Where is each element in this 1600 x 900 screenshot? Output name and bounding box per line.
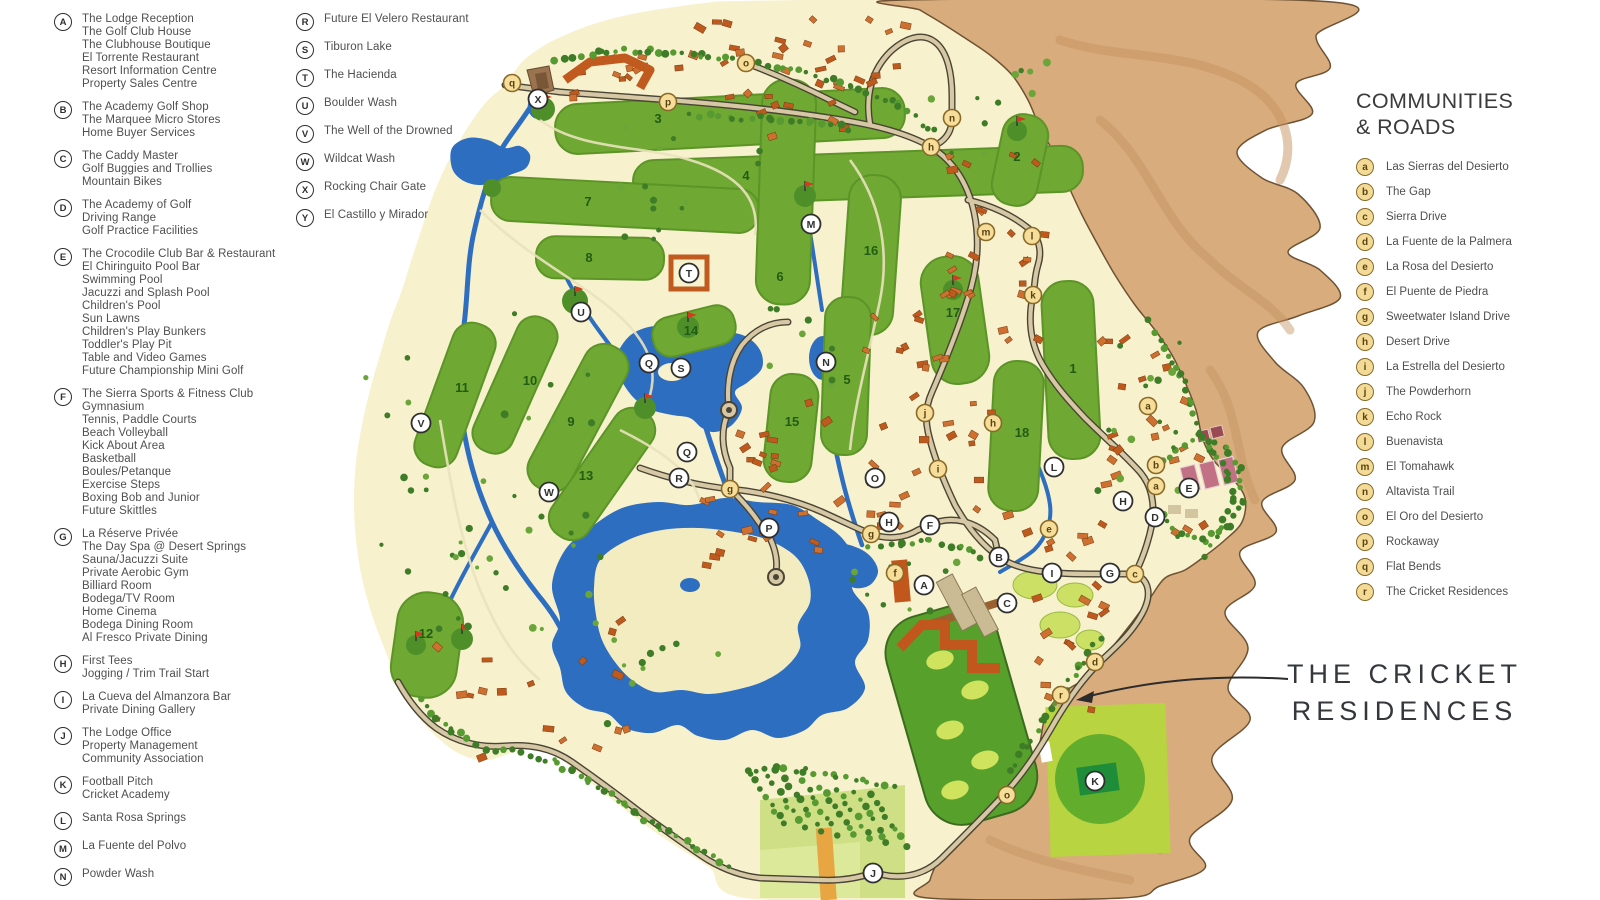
- facility-marker-P: P: [760, 519, 779, 538]
- hole-number-12: 12: [419, 626, 433, 641]
- facility-marker-G: G: [1101, 564, 1120, 583]
- svg-text:K: K: [1091, 776, 1099, 788]
- community-item-c: cSierra Drive: [1356, 208, 1594, 226]
- community-label-a: Las Sierras del Desierto: [1386, 161, 1509, 173]
- svg-text:C: C: [1003, 598, 1011, 610]
- road-marker-o: o: [738, 55, 755, 72]
- legend-item-C: CThe Caddy MasterGolf Buggies and Trolli…: [54, 150, 299, 189]
- communities-roads-legend: COMMUNITIES & ROADS aLas Sierras del Des…: [1356, 88, 1594, 608]
- legend-item-Y: YEl Castillo y Mirador: [296, 209, 481, 227]
- legend-text-I: La Cueva del Almanzora BarPrivate Dining…: [82, 691, 231, 717]
- svg-text:e: e: [1046, 525, 1052, 536]
- facility-marker-W: W: [540, 483, 559, 502]
- community-label-h: Desert Drive: [1386, 336, 1450, 348]
- legend-badge-F: F: [54, 388, 72, 406]
- legend-text-B: The Academy Golf ShopThe Marquee Micro S…: [82, 101, 221, 140]
- community-badge-l: l: [1356, 433, 1374, 451]
- legend-item-G: GLa Réserve PrivéeThe Day Spa @ Desert S…: [54, 528, 299, 645]
- svg-text:E: E: [1185, 483, 1192, 495]
- facility-marker-H: H: [1114, 492, 1133, 511]
- facility-marker-D: D: [1146, 508, 1165, 527]
- community-label-j: The Powderhorn: [1386, 386, 1471, 398]
- road-marker-g: g: [863, 526, 880, 543]
- legend-badge-S: S: [296, 41, 314, 59]
- legend-item-K: KFootball PitchCricket Academy: [54, 776, 299, 802]
- legend-item-R: RFuture El Velero Restaurant: [296, 13, 481, 31]
- facility-marker-R: R: [670, 469, 689, 488]
- legend-item-T: TThe Hacienda: [296, 69, 481, 87]
- community-item-g: gSweetwater Island Drive: [1356, 308, 1594, 326]
- road-marker-p: p: [660, 94, 677, 111]
- road-marker-a: a: [1148, 478, 1165, 495]
- resort-map-page: 123456789101112131415161718qponhmlkjhiab…: [0, 0, 1600, 900]
- communities-list: aLas Sierras del DesiertobThe GapcSierra…: [1356, 158, 1594, 601]
- road-marker-q: q: [504, 75, 521, 92]
- hole-number-2: 2: [1013, 149, 1020, 164]
- legend-text-A: The Lodge ReceptionThe Golf Club HouseTh…: [82, 13, 217, 91]
- svg-text:r: r: [1059, 691, 1063, 702]
- legend-text-C: The Caddy MasterGolf Buggies and Trollie…: [82, 150, 212, 189]
- svg-text:h: h: [928, 143, 934, 154]
- legend-item-H: HFirst TeesJogging / Trim Trail Start: [54, 655, 299, 681]
- community-item-l: lBuenavista: [1356, 433, 1594, 451]
- facility-marker-M: M: [802, 215, 821, 234]
- legend-item-S: STiburon Lake: [296, 41, 481, 59]
- legend-item-B: BThe Academy Golf ShopThe Marquee Micro …: [54, 101, 299, 140]
- community-item-q: qFlat Bends: [1356, 558, 1594, 576]
- svg-text:c: c: [1132, 570, 1138, 581]
- road-marker-i: i: [930, 461, 947, 478]
- svg-text:i: i: [937, 465, 940, 476]
- svg-text:b: b: [1153, 461, 1159, 472]
- facility-marker-E: E: [1180, 479, 1199, 498]
- communities-title-line2: & ROADS: [1356, 114, 1594, 140]
- svg-text:j: j: [923, 409, 927, 420]
- legend-text-K: Football PitchCricket Academy: [82, 776, 170, 802]
- road-marker-g: g: [722, 481, 739, 498]
- facilities-legend: AThe Lodge ReceptionThe Golf Club HouseT…: [54, 13, 299, 896]
- legend-text-X: Rocking Chair Gate: [324, 181, 426, 199]
- community-badge-h: h: [1356, 333, 1374, 351]
- hole-number-6: 6: [776, 269, 783, 284]
- svg-text:a: a: [1153, 482, 1159, 493]
- legend-text-H: First TeesJogging / Trim Trail Start: [82, 655, 209, 681]
- community-label-d: La Fuente de la Palmera: [1386, 236, 1512, 248]
- road-marker-e: e: [1041, 521, 1058, 538]
- legend-badge-W: W: [296, 153, 314, 171]
- hole-number-1: 1: [1069, 361, 1076, 376]
- hole-number-14: 14: [684, 323, 699, 338]
- legend-badge-G: G: [54, 528, 72, 546]
- community-badge-q: q: [1356, 558, 1374, 576]
- road-marker-c: c: [1127, 566, 1144, 583]
- svg-text:a: a: [1145, 402, 1151, 413]
- svg-text:d: d: [1092, 658, 1098, 669]
- communities-title-line1: COMMUNITIES: [1356, 88, 1594, 114]
- legend-badge-A: A: [54, 13, 72, 31]
- legend-badge-M: M: [54, 840, 72, 858]
- road-marker-b: b: [1148, 457, 1165, 474]
- road-marker-j: j: [917, 405, 934, 422]
- svg-text:k: k: [1030, 291, 1036, 302]
- hole-number-8: 8: [585, 250, 592, 265]
- hole-number-10: 10: [523, 373, 537, 388]
- legend-text-T: The Hacienda: [324, 69, 397, 87]
- community-label-q: Flat Bends: [1386, 561, 1441, 573]
- legend-badge-H: H: [54, 655, 72, 673]
- svg-text:H: H: [885, 517, 893, 529]
- hole-number-15: 15: [785, 414, 799, 429]
- community-label-m: El Tomahawk: [1386, 461, 1454, 473]
- community-badge-r: r: [1356, 583, 1374, 601]
- road-marker-l: l: [1024, 228, 1041, 245]
- hole-number-7: 7: [584, 194, 591, 209]
- facility-marker-L: L: [1045, 458, 1064, 477]
- legend-item-M: MLa Fuente del Polvo: [54, 840, 299, 858]
- svg-text:Q: Q: [683, 447, 691, 459]
- svg-text:l: l: [1031, 232, 1034, 243]
- community-badge-n: n: [1356, 483, 1374, 501]
- legend-text-V: The Well of the Drowned: [324, 125, 453, 143]
- community-item-f: fEl Puente de Piedra: [1356, 283, 1594, 301]
- facility-marker-C: C: [998, 594, 1017, 613]
- road-marker-k: k: [1025, 287, 1042, 304]
- svg-text:I: I: [1051, 568, 1054, 580]
- legend-text-L: Santa Rosa Springs: [82, 812, 186, 830]
- legend-item-W: WWildcat Wash: [296, 153, 481, 171]
- svg-text:o: o: [743, 59, 749, 70]
- hole-number-11: 11: [455, 380, 469, 395]
- legend-text-R: Future El Velero Restaurant: [324, 13, 469, 31]
- community-item-e: eLa Rosa del Desierto: [1356, 258, 1594, 276]
- road-marker-r: r: [1053, 687, 1070, 704]
- hole-number-16: 16: [864, 243, 878, 258]
- community-item-b: bThe Gap: [1356, 183, 1594, 201]
- hole-number-13: 13: [579, 468, 593, 483]
- legend-badge-Y: Y: [296, 209, 314, 227]
- svg-text:X: X: [534, 94, 541, 106]
- facility-marker-U: U: [572, 303, 591, 322]
- svg-text:W: W: [544, 487, 554, 499]
- facility-marker-Q: Q: [678, 443, 697, 462]
- legend-text-U: Boulder Wash: [324, 97, 397, 115]
- communities-title: COMMUNITIES & ROADS: [1356, 88, 1594, 140]
- community-item-r: rThe Cricket Residences: [1356, 583, 1594, 601]
- svg-text:U: U: [577, 307, 585, 319]
- community-label-e: La Rosa del Desierto: [1386, 261, 1493, 273]
- hole-number-9: 9: [567, 414, 574, 429]
- legend-badge-E: E: [54, 248, 72, 266]
- road-marker-d: d: [1087, 654, 1104, 671]
- facility-marker-A: A: [915, 576, 934, 595]
- legend-text-N: Powder Wash: [82, 868, 154, 886]
- svg-text:F: F: [927, 520, 934, 532]
- hole-number-4: 4: [742, 168, 750, 183]
- legend-text-F: The Sierra Sports & Fitness ClubGymnasiu…: [82, 388, 253, 518]
- community-label-c: Sierra Drive: [1386, 211, 1447, 223]
- hole-number-3: 3: [654, 111, 661, 126]
- community-item-a: aLas Sierras del Desierto: [1356, 158, 1594, 176]
- facility-marker-V: V: [412, 414, 431, 433]
- legend-text-E: The Crocodile Club Bar & RestaurantEl Ch…: [82, 248, 275, 378]
- community-badge-c: c: [1356, 208, 1374, 226]
- legend-item-E: EThe Crocodile Club Bar & RestaurantEl C…: [54, 248, 299, 378]
- legend-badge-J: J: [54, 727, 72, 745]
- legend-badge-D: D: [54, 199, 72, 217]
- legend-badge-B: B: [54, 101, 72, 119]
- community-label-g: Sweetwater Island Drive: [1386, 311, 1510, 323]
- legend-text-W: Wildcat Wash: [324, 153, 395, 171]
- svg-text:o: o: [1004, 791, 1010, 802]
- community-badge-b: b: [1356, 183, 1374, 201]
- facility-marker-N: N: [817, 353, 836, 372]
- legend-item-L: LSanta Rosa Springs: [54, 812, 299, 830]
- community-badge-o: o: [1356, 508, 1374, 526]
- community-item-i: iLa Estrella del Desierto: [1356, 358, 1594, 376]
- legend-badge-X: X: [296, 181, 314, 199]
- community-badge-d: d: [1356, 233, 1374, 251]
- legend-badge-L: L: [54, 812, 72, 830]
- legend-text-D: The Academy of GolfDriving RangeGolf Pra…: [82, 199, 198, 238]
- svg-text:q: q: [509, 79, 515, 90]
- svg-text:R: R: [675, 473, 683, 485]
- legend-badge-U: U: [296, 97, 314, 115]
- community-label-o: El Oro del Desierto: [1386, 511, 1483, 523]
- road-marker-n: n: [944, 110, 961, 127]
- community-item-p: pRockaway: [1356, 533, 1594, 551]
- facility-marker-O: O: [866, 469, 885, 488]
- community-item-h: hDesert Drive: [1356, 333, 1594, 351]
- community-badge-i: i: [1356, 358, 1374, 376]
- community-item-k: kEcho Rock: [1356, 408, 1594, 426]
- svg-text:L: L: [1051, 462, 1058, 474]
- svg-text:Q: Q: [645, 358, 653, 370]
- legend-badge-C: C: [54, 150, 72, 168]
- legend-badge-R: R: [296, 13, 314, 31]
- facility-marker-T: T: [680, 264, 699, 283]
- legend-badge-K: K: [54, 776, 72, 794]
- legend-item-U: UBoulder Wash: [296, 97, 481, 115]
- community-badge-e: e: [1356, 258, 1374, 276]
- svg-text:H: H: [1119, 496, 1127, 508]
- svg-text:N: N: [822, 357, 830, 369]
- community-label-l: Buenavista: [1386, 436, 1443, 448]
- facility-marker-J: J: [864, 864, 883, 883]
- legend-item-I: ILa Cueva del Almanzora BarPrivate Dinin…: [54, 691, 299, 717]
- svg-text:J: J: [870, 868, 876, 880]
- legend-text-M: La Fuente del Polvo: [82, 840, 186, 858]
- svg-text:p: p: [665, 98, 671, 109]
- community-item-d: dLa Fuente de la Palmera: [1356, 233, 1594, 251]
- community-label-f: El Puente de Piedra: [1386, 286, 1488, 298]
- legend-badge-I: I: [54, 691, 72, 709]
- svg-text:B: B: [995, 552, 1003, 564]
- community-item-o: oEl Oro del Desierto: [1356, 508, 1594, 526]
- facility-marker-X: X: [529, 90, 548, 109]
- community-label-b: The Gap: [1386, 186, 1431, 198]
- facility-marker-H: H: [880, 513, 899, 532]
- community-badge-p: p: [1356, 533, 1374, 551]
- svg-text:D: D: [1151, 512, 1159, 524]
- road-marker-h: h: [985, 415, 1002, 432]
- community-badge-k: k: [1356, 408, 1374, 426]
- road-marker-o: o: [999, 787, 1016, 804]
- landmarks-legend: RFuture El Velero RestaurantSTiburon Lak…: [296, 13, 481, 237]
- legend-item-A: AThe Lodge ReceptionThe Golf Club HouseT…: [54, 13, 299, 91]
- callout-line1: THE CRICKET: [1282, 656, 1527, 693]
- community-badge-f: f: [1356, 283, 1374, 301]
- facility-marker-I: I: [1043, 564, 1062, 583]
- legend-text-G: La Réserve PrivéeThe Day Spa @ Desert Sp…: [82, 528, 246, 645]
- community-badge-j: j: [1356, 383, 1374, 401]
- svg-text:g: g: [868, 530, 874, 541]
- community-badge-g: g: [1356, 308, 1374, 326]
- road-marker-m: m: [978, 224, 995, 241]
- community-badge-a: a: [1356, 158, 1374, 176]
- community-badge-m: m: [1356, 458, 1374, 476]
- legend-text-S: Tiburon Lake: [324, 41, 392, 59]
- svg-text:T: T: [686, 268, 693, 280]
- facility-marker-S: S: [672, 359, 691, 378]
- legend-text-Y: El Castillo y Mirador: [324, 209, 428, 227]
- svg-text:n: n: [949, 114, 955, 125]
- facility-marker-K: K: [1086, 772, 1105, 791]
- callout-line2: RESIDENCES: [1282, 693, 1527, 730]
- svg-text:M: M: [807, 219, 816, 231]
- facility-marker-Q: Q: [640, 354, 659, 373]
- hole-number-5: 5: [843, 372, 850, 387]
- legend-text-J: The Lodge OfficeProperty ManagementCommu…: [82, 727, 204, 766]
- svg-text:A: A: [920, 580, 928, 592]
- legend-item-F: FThe Sierra Sports & Fitness ClubGymnasi…: [54, 388, 299, 518]
- hole-number-18: 18: [1015, 425, 1029, 440]
- svg-text:g: g: [727, 485, 733, 496]
- community-item-n: nAltavista Trail: [1356, 483, 1594, 501]
- road-marker-a: a: [1140, 398, 1157, 415]
- svg-text:V: V: [417, 418, 424, 430]
- svg-text:P: P: [765, 523, 772, 535]
- legend-item-N: NPowder Wash: [54, 868, 299, 886]
- svg-text:m: m: [982, 228, 991, 239]
- community-label-i: La Estrella del Desierto: [1386, 361, 1505, 373]
- facility-marker-F: F: [921, 516, 940, 535]
- legend-item-X: XRocking Chair Gate: [296, 181, 481, 199]
- community-item-m: mEl Tomahawk: [1356, 458, 1594, 476]
- community-label-p: Rockaway: [1386, 536, 1439, 548]
- legend-item-V: VThe Well of the Drowned: [296, 125, 481, 143]
- legend-badge-T: T: [296, 69, 314, 87]
- svg-text:S: S: [677, 363, 684, 375]
- hole-number-17: 17: [946, 305, 960, 320]
- legend-badge-N: N: [54, 868, 72, 886]
- legend-badge-V: V: [296, 125, 314, 143]
- community-label-n: Altavista Trail: [1386, 486, 1454, 498]
- community-item-j: jThe Powderhorn: [1356, 383, 1594, 401]
- svg-text:O: O: [871, 473, 879, 485]
- community-label-r: The Cricket Residences: [1386, 586, 1508, 598]
- cricket-residences-callout: THE CRICKET RESIDENCES: [1282, 656, 1527, 730]
- road-marker-f: f: [887, 565, 904, 582]
- svg-text:h: h: [990, 419, 996, 430]
- community-label-k: Echo Rock: [1386, 411, 1442, 423]
- legend-item-D: DThe Academy of GolfDriving RangeGolf Pr…: [54, 199, 299, 238]
- legend-item-J: JThe Lodge OfficeProperty ManagementComm…: [54, 727, 299, 766]
- svg-text:G: G: [1106, 568, 1114, 580]
- road-marker-h: h: [923, 139, 940, 156]
- facility-marker-B: B: [990, 548, 1009, 567]
